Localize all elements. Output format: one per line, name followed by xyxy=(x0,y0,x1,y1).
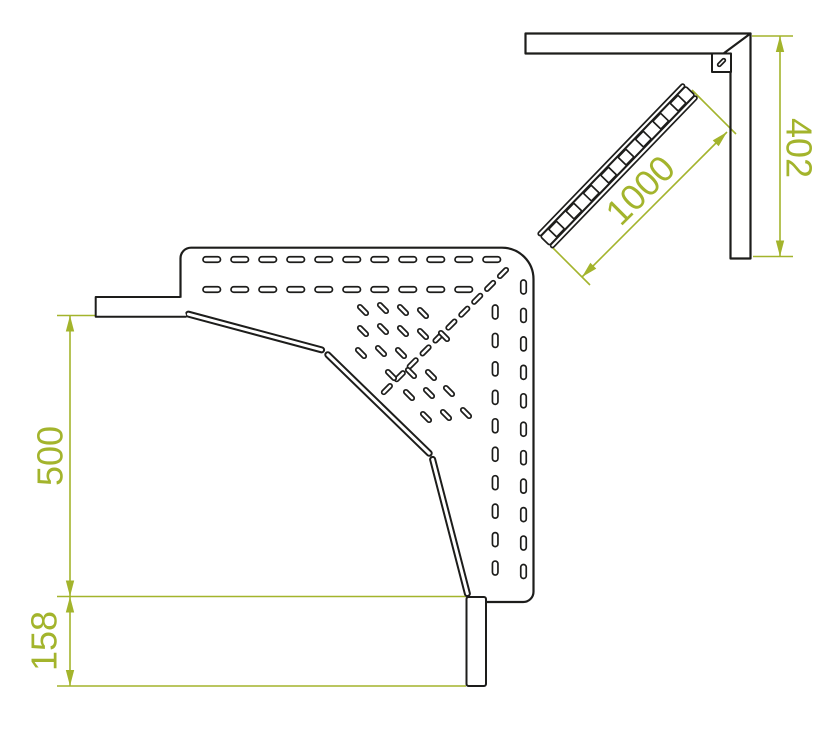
perforation-slot xyxy=(355,347,367,359)
perforation-slot xyxy=(357,304,369,316)
perforation-slot xyxy=(315,257,333,263)
perforation-slot xyxy=(492,305,498,319)
perforation-slot xyxy=(521,479,527,493)
perforation-slot xyxy=(521,394,527,408)
perforation-slot xyxy=(443,385,455,397)
perforation-slot xyxy=(377,302,389,314)
technical-drawing-page: 500 158 402 1000 xyxy=(0,0,835,742)
dimension-label-402: 402 xyxy=(778,118,819,178)
perforation-slot xyxy=(497,267,509,279)
plan-view xyxy=(96,248,534,686)
perforation-slot xyxy=(357,325,369,337)
dimension-label-500: 500 xyxy=(30,426,71,486)
perforation-slot xyxy=(492,419,498,433)
perforation-slot xyxy=(420,344,432,356)
perforation-slot xyxy=(399,287,417,293)
perforation-slot xyxy=(203,257,221,263)
perforation-slot xyxy=(185,311,324,353)
perforation-slot xyxy=(483,257,501,263)
perforation-slot xyxy=(430,456,471,596)
perforation-slot xyxy=(427,287,445,293)
perforation-slot xyxy=(521,308,527,322)
perforation-slot xyxy=(423,387,435,399)
slot-column-right-2 xyxy=(521,280,527,579)
perforation-slot xyxy=(315,287,333,293)
horizontal-bar xyxy=(526,34,751,54)
dim-arrow xyxy=(776,36,784,52)
dim-arrow xyxy=(66,581,74,597)
perforation-slot xyxy=(287,287,305,293)
perforation-slot xyxy=(395,347,407,359)
perforation-slot xyxy=(231,257,249,263)
perforation-slot xyxy=(259,257,277,263)
perforation-slot xyxy=(521,365,527,379)
dim-arrow xyxy=(66,316,74,332)
dimension-1000: 1000 xyxy=(552,90,736,285)
perforation-slot xyxy=(484,280,496,292)
perforation-slot xyxy=(521,280,527,294)
cable-tray-bend-drawing: 500 158 402 1000 xyxy=(0,0,835,742)
dimension-402: 402 xyxy=(752,36,819,257)
perforation-slot xyxy=(399,257,417,263)
perforation-slot xyxy=(324,351,432,457)
perforation-slot xyxy=(455,257,473,263)
perforation-slot xyxy=(287,257,305,263)
perforation-slot xyxy=(471,293,483,305)
slot-column-right-1 xyxy=(492,305,498,575)
perforation-slot xyxy=(371,257,389,263)
perforation-slot xyxy=(343,257,361,263)
dim-arrow xyxy=(66,597,74,613)
vertical-bar xyxy=(731,34,751,259)
perforation-slot xyxy=(397,325,409,337)
perforation-slot xyxy=(492,476,498,490)
dimension-158: 158 xyxy=(24,597,466,687)
dim-arrow xyxy=(776,241,784,257)
perforation-slot xyxy=(231,287,249,293)
perforation-slot xyxy=(492,561,498,575)
side-view xyxy=(526,34,751,259)
perforation-slot xyxy=(417,307,429,319)
dimension-500: 500 xyxy=(30,316,466,597)
perforation-slot xyxy=(492,533,498,547)
perforation-slot xyxy=(371,287,389,293)
tray-body-outline xyxy=(181,248,534,602)
perforation-slot xyxy=(521,451,527,465)
perforation-slot xyxy=(492,447,498,461)
slot-row-top-2 xyxy=(203,287,473,293)
perforation-slot xyxy=(381,383,393,395)
perforation-slot xyxy=(492,362,498,376)
perforation-slot xyxy=(375,345,387,357)
perforation-slot xyxy=(455,287,473,293)
perforation-slot xyxy=(259,287,277,293)
perforation-slot xyxy=(403,389,415,401)
perforation-slot xyxy=(492,504,498,518)
perforation-slot xyxy=(343,287,361,293)
perforation-slot xyxy=(425,369,437,381)
perforation-slot xyxy=(521,536,527,550)
dim-arrow xyxy=(66,670,74,686)
perforation-slot xyxy=(521,337,527,351)
perforation-slot xyxy=(203,287,221,293)
perforation-slot xyxy=(458,306,470,318)
perforation-slot xyxy=(521,422,527,436)
perforation-slot xyxy=(521,508,527,522)
extension-line xyxy=(552,247,590,285)
slot-row-top-1 xyxy=(203,257,501,263)
dimension-label-158: 158 xyxy=(24,611,65,671)
perforation-slot xyxy=(417,328,429,340)
inner-wall-plates xyxy=(185,311,470,597)
perforation-slot xyxy=(492,333,498,347)
perforation-slot xyxy=(440,409,452,421)
perforation-slot xyxy=(427,257,445,263)
perforation-slot xyxy=(460,407,472,419)
perforation-slot xyxy=(397,304,409,316)
perforation-slot xyxy=(521,565,527,579)
perforation-slot xyxy=(492,390,498,404)
perforation-slot xyxy=(377,323,389,335)
perforation-slot xyxy=(420,411,432,423)
flange-bottom xyxy=(467,597,487,686)
flange-top-left xyxy=(96,297,187,317)
perforation-slot xyxy=(445,319,457,331)
